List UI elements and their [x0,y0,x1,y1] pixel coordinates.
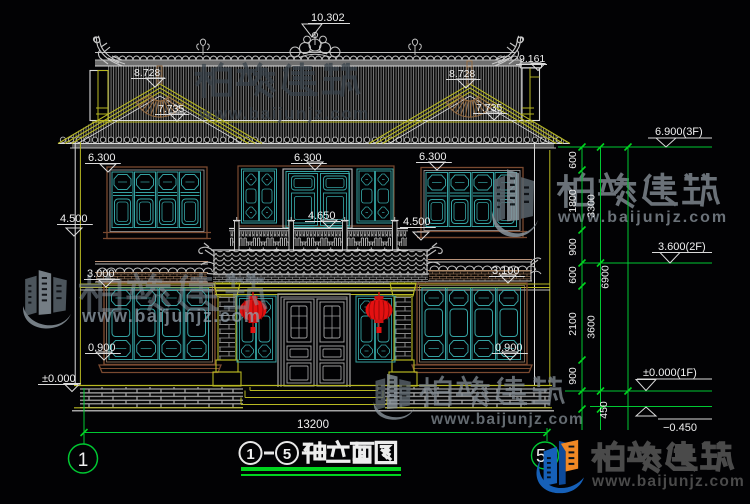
svg-text:www.baijunjz.com: www.baijunjz.com [198,104,370,123]
svg-text:6.900(3F): 6.900(3F) [655,126,703,138]
svg-text:2100: 2100 [567,312,579,336]
svg-text:13200: 13200 [297,419,329,431]
svg-text:8.728: 8.728 [449,68,475,80]
svg-text:6900: 6900 [600,265,612,289]
svg-text:900: 900 [567,238,579,256]
svg-text:www.baijunjz.com: www.baijunjz.com [557,209,728,226]
svg-text:±0.000(1F): ±0.000(1F) [643,367,697,379]
svg-text:3600: 3600 [586,315,598,339]
svg-text:600: 600 [567,151,579,169]
svg-text:1800: 1800 [567,189,579,213]
svg-text:3.600(2F): 3.600(2F) [658,241,706,253]
svg-text:4.500: 4.500 [60,213,88,225]
svg-text:6.300: 6.300 [419,151,447,163]
svg-text:3.000: 3.000 [87,268,115,280]
svg-text:900: 900 [567,367,579,385]
svg-text:www.baijunjz.com: www.baijunjz.com [591,473,745,490]
svg-text:450: 450 [598,401,610,419]
svg-text:−0.450: −0.450 [663,422,697,434]
svg-text:1: 1 [78,450,89,471]
svg-text:3300: 3300 [586,194,598,218]
svg-text:www.baijunjz.com: www.baijunjz.com [81,306,261,326]
svg-text:10.302: 10.302 [311,12,345,24]
svg-text:1: 1 [246,446,254,463]
svg-text:600: 600 [567,266,579,284]
svg-text:6.300: 6.300 [88,152,116,164]
svg-text:8.728: 8.728 [134,67,160,79]
svg-text:4.500: 4.500 [403,216,431,228]
svg-text:5: 5 [283,446,291,463]
svg-text:www.baijunjz.com: www.baijunjz.com [430,411,584,428]
